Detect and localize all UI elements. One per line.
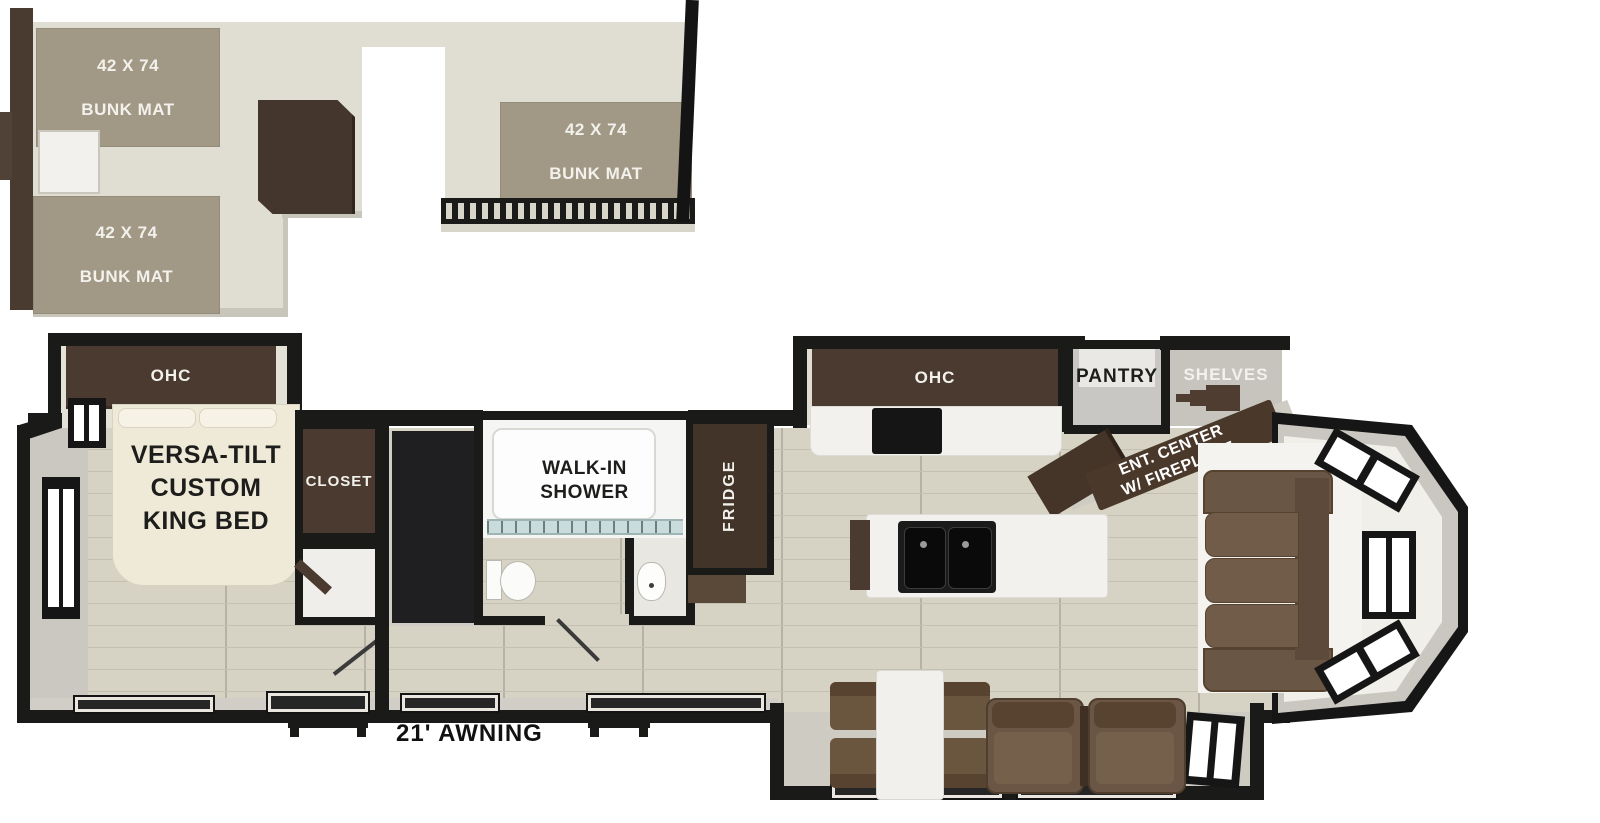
window-pane [63,489,74,607]
sofa-cushion [1205,558,1299,603]
entry-door [268,693,368,712]
shelves-step [1176,394,1190,402]
bunk-mat: 42 X 74 BUNK MAT [33,196,220,314]
top-wall [28,413,62,428]
fridge-counter [688,575,746,603]
rv-floorplan: 42 X 74 BUNK MAT 42 X 74 BUNK MAT 42 X 7… [0,0,1600,823]
loft-left-wall [10,8,33,310]
pillow [199,408,277,428]
loft-railing-balusters [446,203,690,219]
closet: CLOSET [303,429,375,533]
bunk-mat-label: BUNK MAT [549,164,642,183]
shelves-step [1206,385,1240,411]
bedroom-front-window [42,477,80,619]
bedroom-slideout-wall [48,333,302,346]
dinette-table [876,670,944,800]
bunk-mat-label: 42 X 74 [565,120,627,139]
awning-label: 21' AWNING [396,720,543,748]
top-wall [1160,336,1290,350]
kitchen-slideout-wall [793,336,1085,349]
shower-glass [487,519,683,535]
shelves-step [1190,390,1206,406]
bunk-mat-label: 42 X 74 [97,56,159,75]
bunk-mat-label: 42 X 74 [95,223,157,242]
loft-floor-shadow [283,218,288,316]
king-bed: VERSA-TILTCUSTOMKING BED [112,404,300,586]
loft-dresser [258,100,355,214]
bedroom-slideout-wall [48,333,61,425]
loft-railing [441,198,695,224]
window-pane [74,405,84,441]
bunk-mat-label: BUNK MAT [80,267,173,286]
bedroom-side-window [68,398,106,448]
faucet [962,541,969,548]
fridge: FRIDGE [693,424,767,568]
island-sink [898,521,996,593]
pillow [118,408,196,428]
cooktop [872,408,942,454]
top-wall [295,410,483,426]
walk-in-shower-label: WALK-INSHOWER [483,455,686,507]
entry-door [588,695,764,711]
kitchen-slideout-wall [793,336,807,428]
pantry-label: PANTRY [1064,366,1170,388]
sofa-cushion [1205,604,1299,648]
slideout-end-window [1181,712,1245,789]
window-pane [48,489,59,607]
loft-left-wall-step [0,112,12,180]
island-end-cabinet [850,520,870,590]
faucet [920,541,927,548]
bunk-mat-label: BUNK MAT [81,100,174,119]
sofa-cushion [1205,512,1299,557]
sofa-backrest [1295,478,1329,660]
king-bed-label: VERSA-TILTCUSTOMKING BED [113,433,299,543]
shelves-label: SHELVES [1170,364,1282,386]
bedroom-divider-wall [375,413,389,713]
bathroom-sink [637,562,666,601]
overhead-cabinet: OHC [812,349,1058,409]
loft-stairs [389,431,480,626]
rear-window-middle [1362,531,1416,619]
loft-landing [38,130,100,194]
front-wall [17,425,30,723]
bath-divider-wall [625,538,634,616]
window-pane [89,405,99,441]
bunk-mat: 42 X 74 BUNK MAT [500,102,692,201]
bedroom-window-bottom [75,697,213,712]
hall-window-bottom [402,695,498,711]
